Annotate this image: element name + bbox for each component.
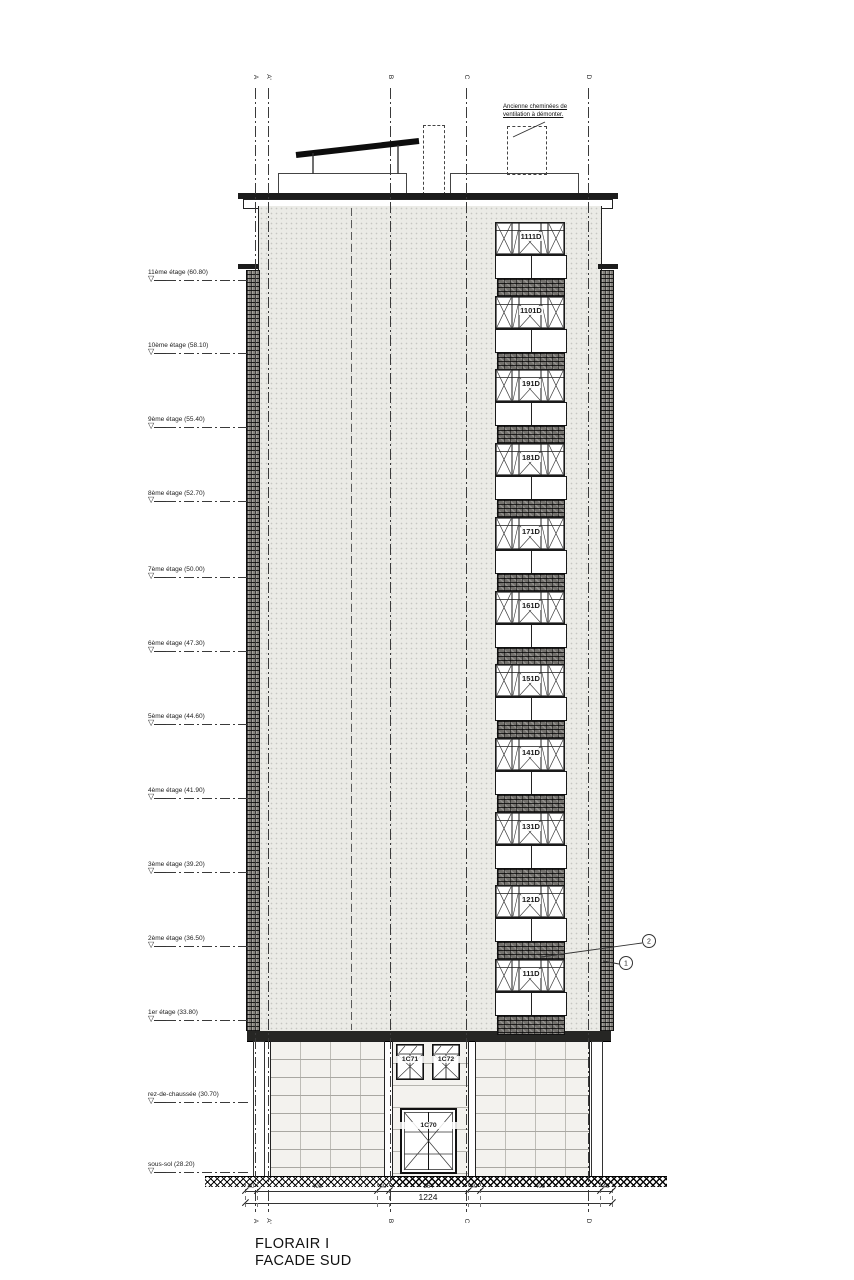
- callout-2-leader: [541, 943, 642, 957]
- callout-2-number: 2: [647, 939, 651, 946]
- elevation-drawing-canvas: Ancienne cheminées de ventilation à démo…: [0, 0, 854, 1280]
- callout-1-number: 1: [624, 961, 628, 968]
- annotation-leader-line: [513, 122, 545, 137]
- callout-1-leader: [603, 961, 619, 964]
- overlay-lines: 2 1: [0, 0, 854, 1280]
- solar-panel-icon: [296, 141, 419, 155]
